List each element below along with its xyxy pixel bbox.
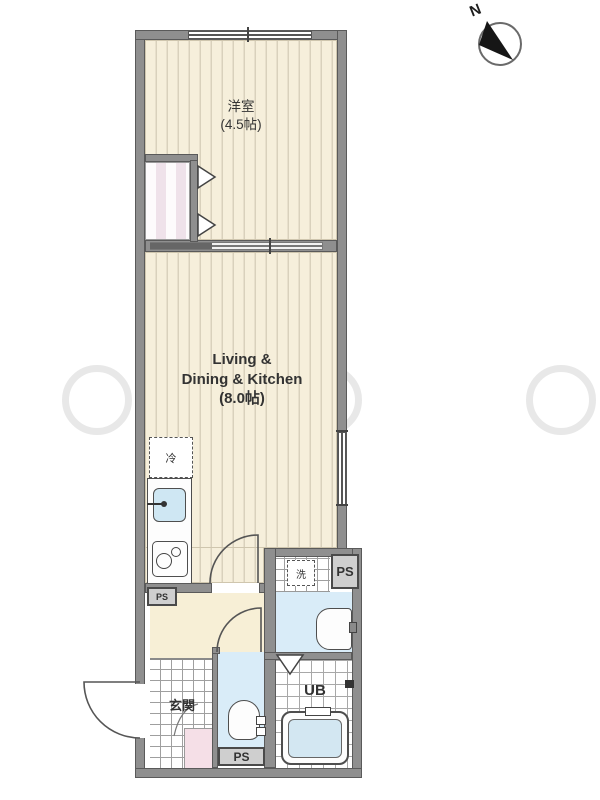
ldk-size: (8.0帖): [158, 389, 326, 409]
toilet-tank-upper: [256, 716, 266, 725]
toilet-tank-lower: [256, 727, 266, 736]
ldk-name-line2: Dining & Kitchen: [158, 370, 326, 390]
stove-burner-small: [171, 547, 181, 557]
wall-washroom-bath: [264, 652, 352, 660]
western-room-size: (4.5帖): [181, 116, 301, 134]
watermark-glyph: [526, 365, 596, 435]
western-room-name: 洋室: [181, 98, 301, 116]
washing-machine-space: 洗: [287, 560, 315, 586]
pipe-space-left: PS: [147, 587, 177, 606]
window-right-tick-top: [336, 430, 348, 432]
refrigerator-space: 冷: [149, 437, 193, 478]
sliding-door-tick: [269, 238, 271, 254]
bathtub-faucet-icon: [305, 707, 331, 716]
ps-lower-label: PS: [233, 750, 249, 764]
floor-plan: N 冷 洗: [0, 0, 600, 800]
window-top-line: [188, 34, 312, 36]
basin-faucet-icon: [349, 622, 357, 633]
pipe-space-lower: PS: [218, 747, 265, 766]
ldk-label: Living & Dining & Kitchen (8.0帖): [158, 350, 326, 409]
wall-closet-right: [190, 160, 198, 242]
window-right-line: [341, 432, 343, 506]
unit-bath-label: UB: [295, 682, 335, 699]
wall-toilet-jamb: [212, 647, 220, 654]
ps-upper-label: PS: [336, 564, 353, 579]
wash-basin: [316, 608, 352, 650]
entrance-hall-divider: [150, 658, 212, 660]
refrigerator-label: 冷: [166, 450, 177, 466]
pipe-space-upper: PS: [331, 554, 359, 589]
unit-bath-handle-icon: [345, 680, 354, 688]
closet-floor: [145, 162, 190, 240]
window-right-tick-bottom: [336, 504, 348, 506]
washing-machine-label: 洗: [296, 566, 306, 581]
unit-bath-name: UB: [304, 682, 326, 699]
compass-icon: [478, 22, 522, 66]
north-label: N: [467, 1, 483, 21]
sink-faucet-dot: [161, 501, 167, 507]
kitchen-sink: [153, 488, 186, 522]
entrance-name: 玄関: [169, 698, 195, 713]
sliding-door-rail: [212, 245, 323, 247]
bathtub-inner: [288, 719, 342, 758]
entry-doorway-gap: [135, 684, 145, 738]
wall-outer-bottom: [135, 768, 362, 778]
ldk-name-line1: Living &: [158, 350, 326, 370]
watermark-glyph: [62, 365, 132, 435]
entrance-step: [184, 728, 212, 768]
wall-outer-left: [135, 30, 145, 778]
stove-burner-large: [156, 553, 172, 569]
window-top-tick: [247, 27, 249, 42]
entrance-label: 玄関: [152, 695, 212, 714]
western-room-label: 洋室 (4.5帖): [181, 98, 301, 133]
sliding-door-panel: [150, 243, 212, 249]
entry-door-arc: [84, 682, 140, 738]
ps-left-label: PS: [156, 592, 168, 602]
